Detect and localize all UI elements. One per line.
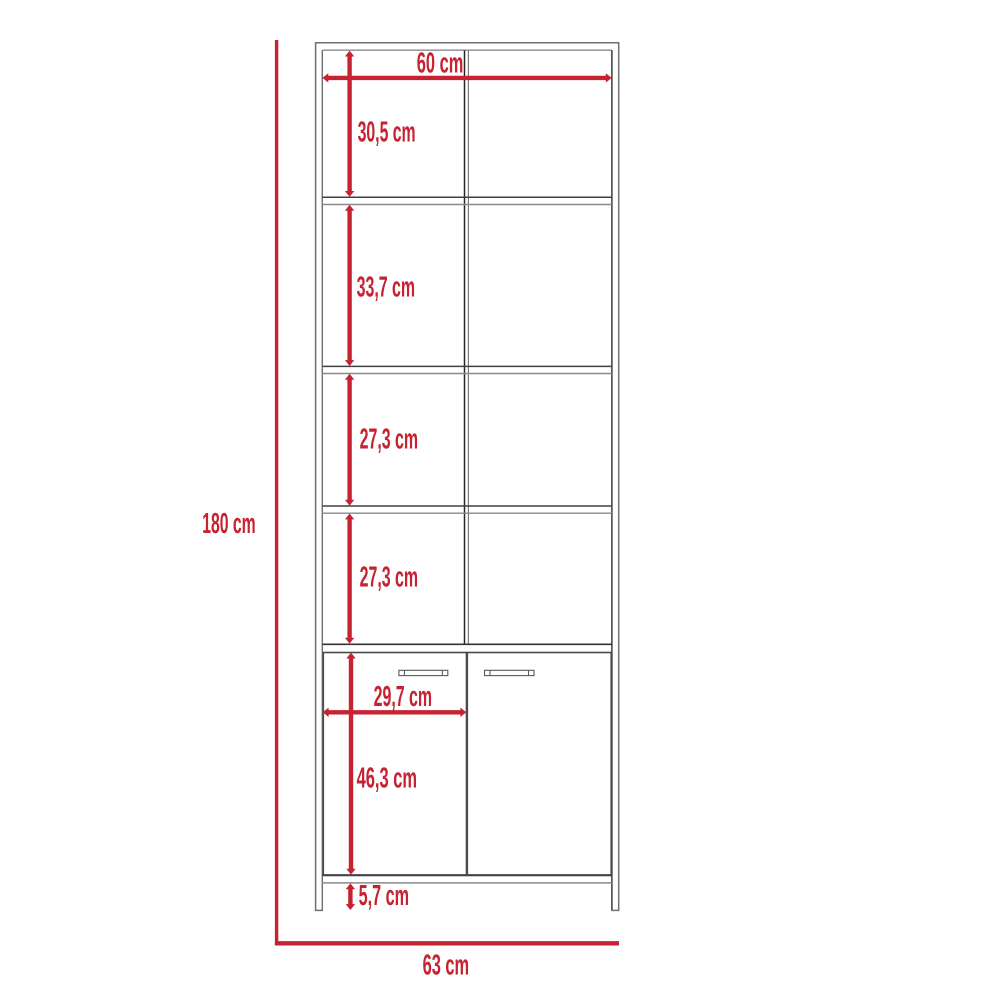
svg-text:5,7 cm: 5,7 cm — [359, 880, 410, 912]
svg-text:33,7 cm: 33,7 cm — [357, 271, 416, 303]
svg-text:60 cm: 60 cm — [417, 47, 464, 79]
svg-text:63 cm: 63 cm — [423, 950, 470, 982]
svg-text:29,7 cm: 29,7 cm — [374, 681, 433, 713]
svg-text:27,3 cm: 27,3 cm — [360, 561, 419, 593]
svg-text:30,5 cm: 30,5 cm — [358, 117, 416, 149]
svg-text:27,3 cm: 27,3 cm — [360, 423, 419, 455]
svg-text:46,3 cm: 46,3 cm — [357, 762, 418, 794]
svg-text:180 cm: 180 cm — [202, 508, 256, 540]
